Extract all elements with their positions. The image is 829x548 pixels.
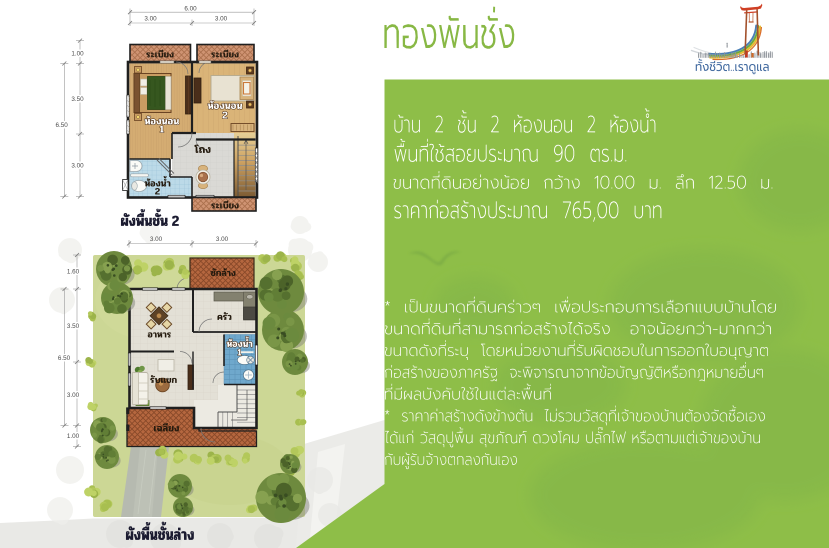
svg-text:3.00: 3.00	[216, 236, 229, 243]
svg-text:3.00: 3.00	[67, 392, 80, 399]
svg-text:1.60: 1.60	[67, 269, 80, 276]
svg-text:1.00: 1.00	[71, 51, 84, 58]
svg-text:3.00: 3.00	[150, 236, 163, 243]
svg-text:6.00: 6.00	[184, 6, 197, 13]
svg-text:1.00: 1.00	[67, 433, 80, 440]
svg-text:3.50: 3.50	[67, 323, 80, 330]
svg-text:6.50: 6.50	[55, 122, 68, 129]
svg-text:3.50: 3.50	[71, 96, 84, 103]
svg-text:3.00: 3.00	[144, 16, 157, 23]
svg-text:6.50: 6.50	[58, 355, 71, 362]
svg-text:3.00: 3.00	[71, 163, 84, 170]
svg-text:3.00: 3.00	[215, 16, 228, 23]
